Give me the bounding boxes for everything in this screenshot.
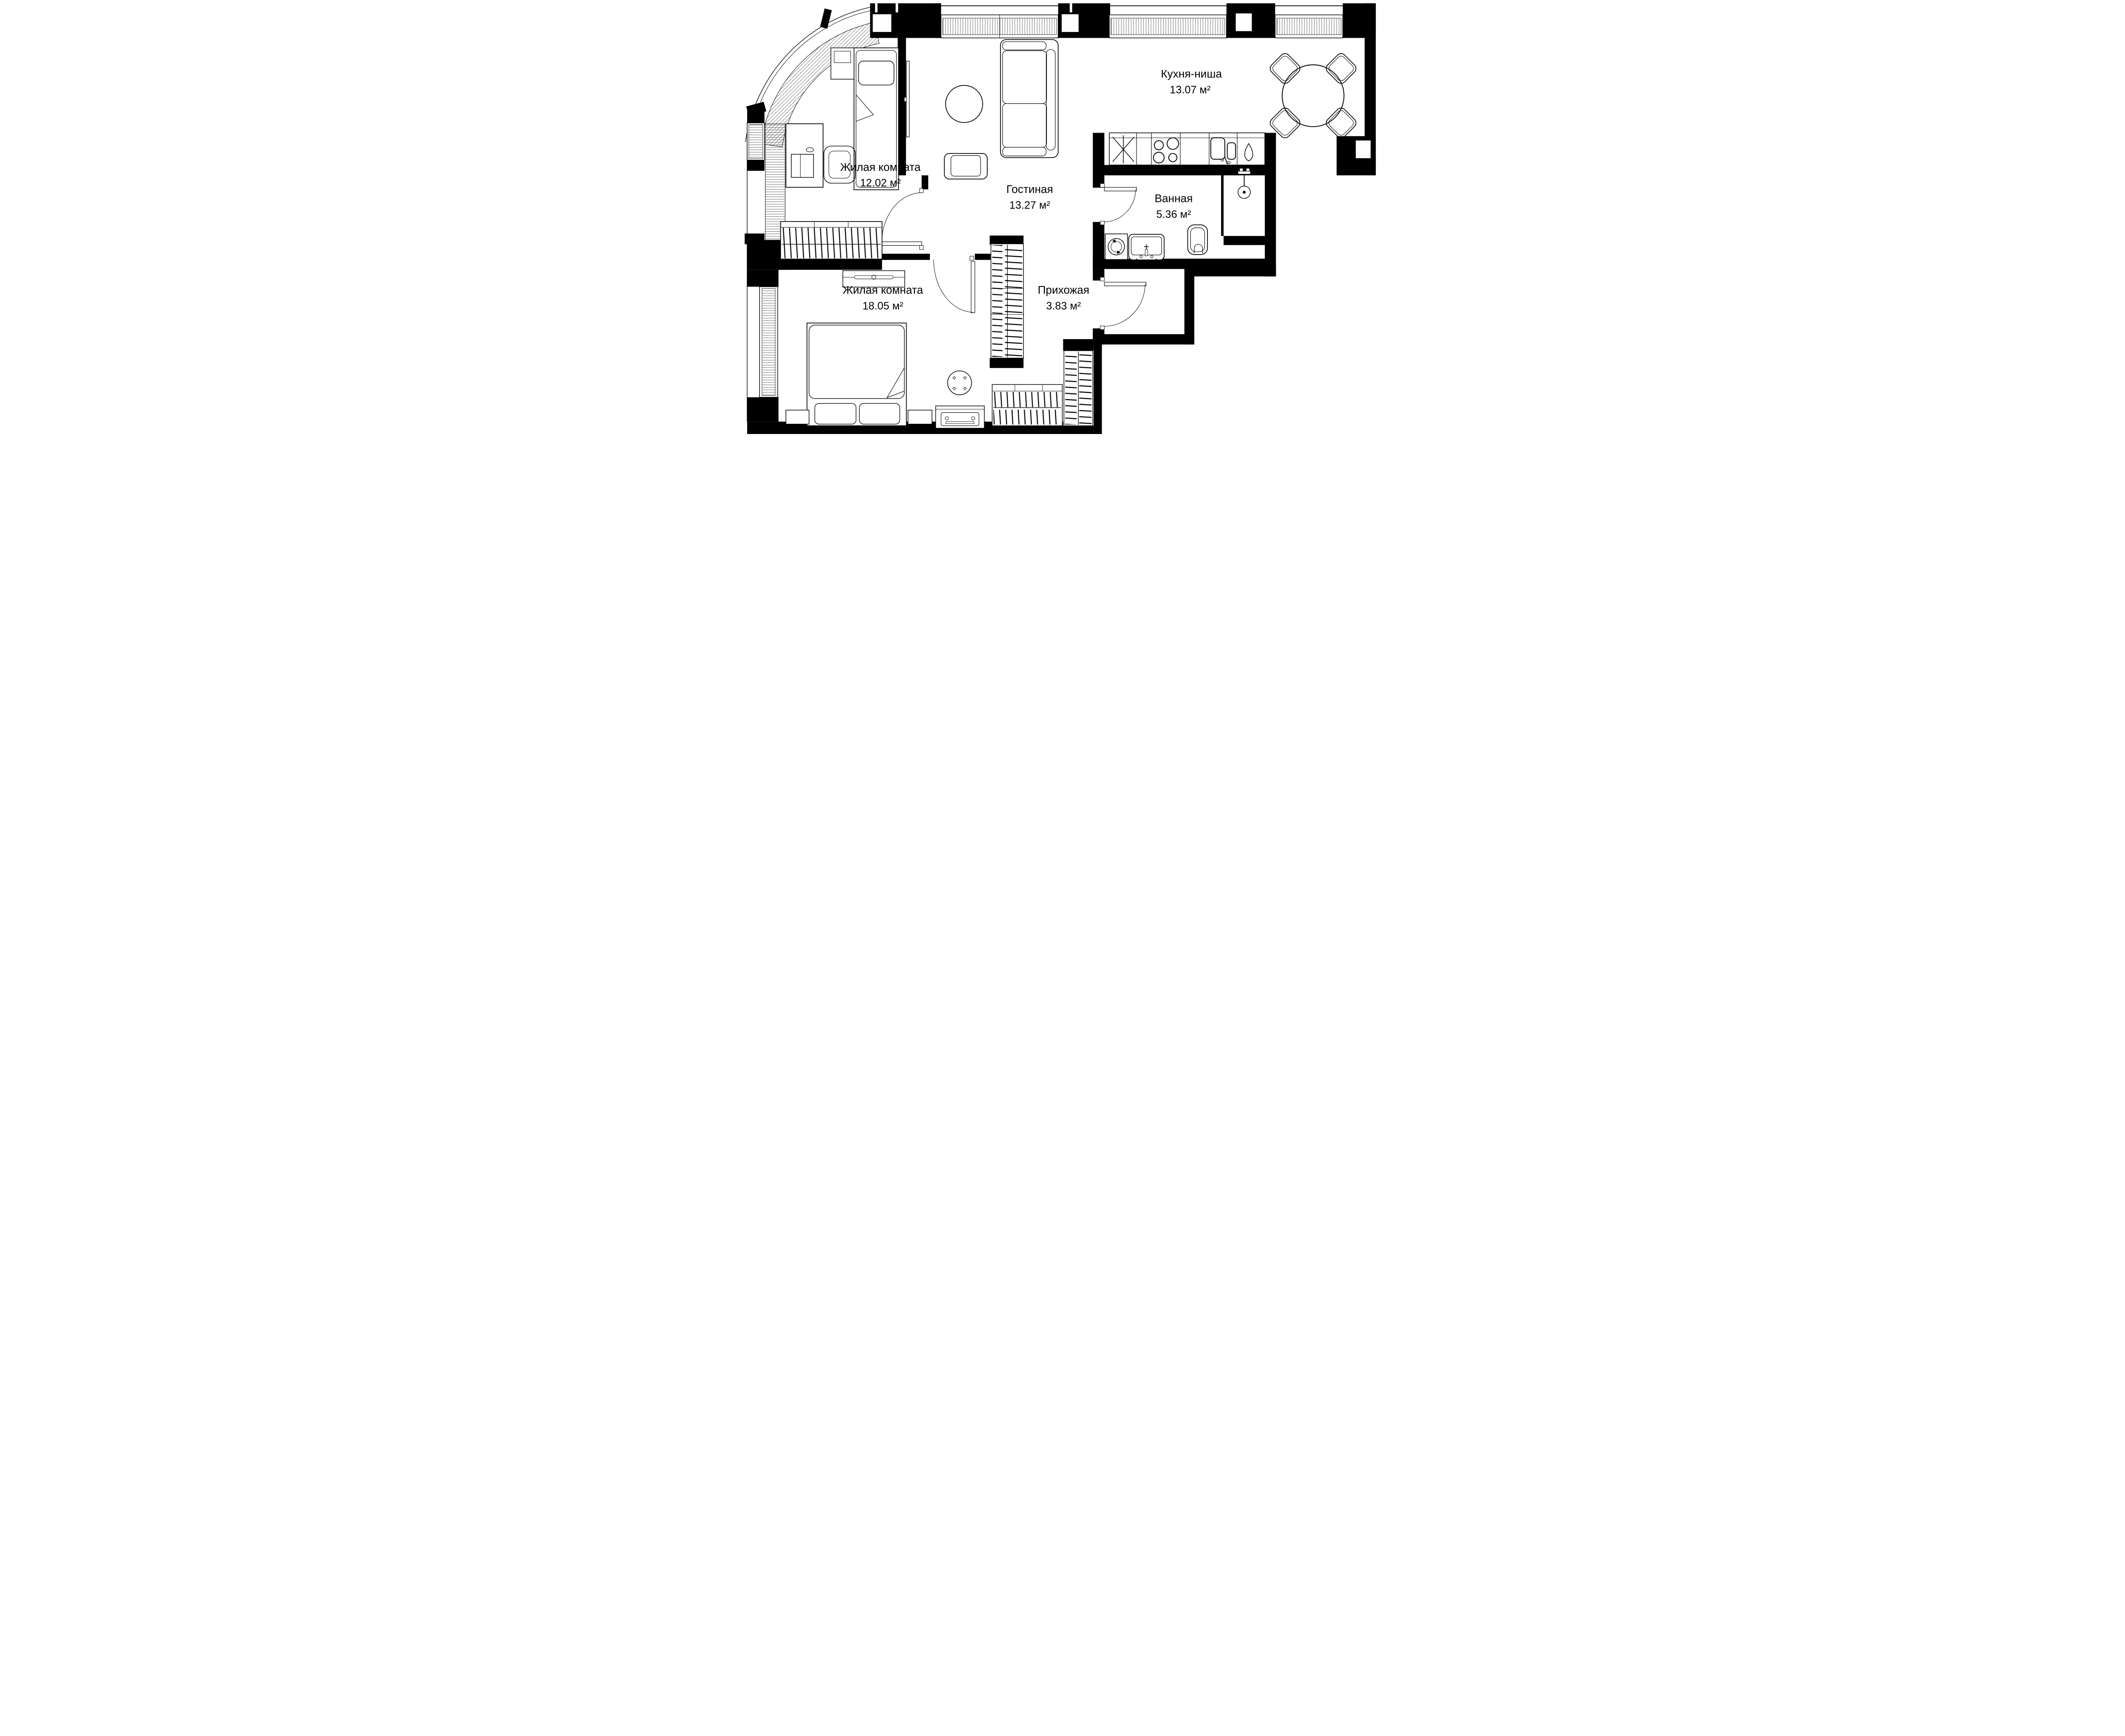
shaft-niche xyxy=(1062,14,1079,32)
room-label-hallway: Прихожая xyxy=(1038,284,1089,296)
wall-shower-divider xyxy=(1221,175,1224,236)
wall-segment xyxy=(1193,266,1276,276)
window-glass xyxy=(1111,18,1225,35)
door-jamb xyxy=(970,256,974,261)
door-jamb xyxy=(1100,221,1105,225)
wall-segment xyxy=(779,259,882,269)
coffee-table xyxy=(946,85,983,122)
room-area-bathroom: 5.36 м² xyxy=(1156,208,1191,220)
wall-segment xyxy=(877,254,930,260)
wall-segment xyxy=(745,233,765,244)
door-swing xyxy=(934,259,973,312)
wall-segment xyxy=(1265,133,1276,277)
wall-bedroom1-east xyxy=(898,36,906,175)
nightstand xyxy=(786,410,809,424)
bed-pillow xyxy=(815,403,856,424)
bed-pillow xyxy=(858,61,894,85)
wall-segment xyxy=(747,270,779,287)
washing-machine xyxy=(1105,234,1127,259)
room-area-hallway: 3.83 м² xyxy=(1046,300,1081,312)
armchair-seat xyxy=(951,156,980,176)
kitchen-furniture xyxy=(1109,51,1358,165)
sofa-seat xyxy=(1003,104,1047,148)
wall-segment xyxy=(922,175,929,189)
dining-chair xyxy=(1324,51,1358,85)
sofa-armrest xyxy=(1003,147,1046,156)
wardrobe-hangers xyxy=(782,228,881,258)
wall-segment xyxy=(1093,133,1104,176)
room-label-bathroom: Ванная xyxy=(1155,192,1193,205)
wall-slit xyxy=(875,3,878,12)
door-jamb xyxy=(1100,277,1105,281)
wall-segment xyxy=(747,110,765,124)
room-area-living: 13.27 м² xyxy=(1009,199,1050,211)
hallway-furniture xyxy=(991,244,1093,426)
door-leaf xyxy=(971,261,975,312)
door-jamb xyxy=(920,189,924,193)
door-jamb xyxy=(1100,326,1105,330)
wall-entry-south xyxy=(1093,334,1194,344)
wall-slit xyxy=(1070,3,1072,12)
room-area-bedroom-small: 12.02 м² xyxy=(860,177,901,189)
room-label-bedroom-large: Жилая комната xyxy=(843,284,924,296)
desk-monitor xyxy=(791,154,813,177)
tv-bracket xyxy=(904,97,907,102)
wall-segment xyxy=(990,358,1024,368)
sofa-seat xyxy=(1003,51,1047,103)
bench xyxy=(936,406,985,428)
dining-chair xyxy=(1268,51,1302,85)
dresser-handle xyxy=(854,275,893,279)
window-glass xyxy=(1277,18,1341,35)
dining-table xyxy=(1282,65,1344,127)
wall-segment xyxy=(1184,266,1194,344)
stool xyxy=(948,371,972,395)
bathtub xyxy=(1129,234,1164,260)
tv xyxy=(907,61,909,137)
wall-segment xyxy=(1224,236,1265,245)
wall-segment xyxy=(1063,339,1094,351)
sofa-armrest xyxy=(1003,42,1046,50)
sofa xyxy=(1000,40,1058,158)
toilet xyxy=(1188,225,1208,255)
door-swing xyxy=(1105,189,1136,222)
room-label-kitchen: Кухня-ниша xyxy=(1161,67,1222,80)
living-room-furniture xyxy=(904,40,1058,179)
nightstand xyxy=(908,410,932,424)
shower-head xyxy=(1238,168,1250,199)
room-area-bedroom-large: 18.05 м² xyxy=(862,300,903,312)
room-label-living: Гостиная xyxy=(1006,183,1053,196)
door-leaf xyxy=(881,242,921,246)
wall-slit xyxy=(895,3,898,12)
door-jamb xyxy=(920,245,924,250)
wardrobe xyxy=(992,385,1062,426)
shaft-niche xyxy=(873,14,892,32)
room-area-kitchen: 13.07 м² xyxy=(1170,84,1210,96)
wall-segment xyxy=(1094,339,1102,434)
wall-segment xyxy=(747,159,765,171)
door-jamb xyxy=(1100,184,1105,187)
shaft-niche xyxy=(1235,13,1252,31)
wall-segment xyxy=(935,3,941,38)
window-glass xyxy=(762,288,775,395)
room-label-bedroom-small: Жилая комната xyxy=(840,161,921,173)
shaft-niche xyxy=(1356,140,1371,159)
wardrobe xyxy=(1064,351,1093,426)
sofa-back xyxy=(1046,49,1055,150)
window-glass xyxy=(749,125,763,159)
wall-segment xyxy=(975,254,991,260)
floor-plan: Кухня-ниша 13.07 м² Гостиная 13.27 м² Жи… xyxy=(744,0,1381,434)
wall-segment xyxy=(990,235,1024,244)
entry-door-swing xyxy=(1105,284,1145,326)
wardrobe xyxy=(991,244,1024,358)
wall-segment xyxy=(747,397,779,422)
wall-segment xyxy=(1063,426,1094,434)
bed-pillow xyxy=(859,403,900,424)
door-swing xyxy=(881,193,921,243)
dining-chair xyxy=(1324,106,1358,140)
entry-door-leaf xyxy=(1105,282,1146,286)
door-leaf xyxy=(1105,187,1137,191)
